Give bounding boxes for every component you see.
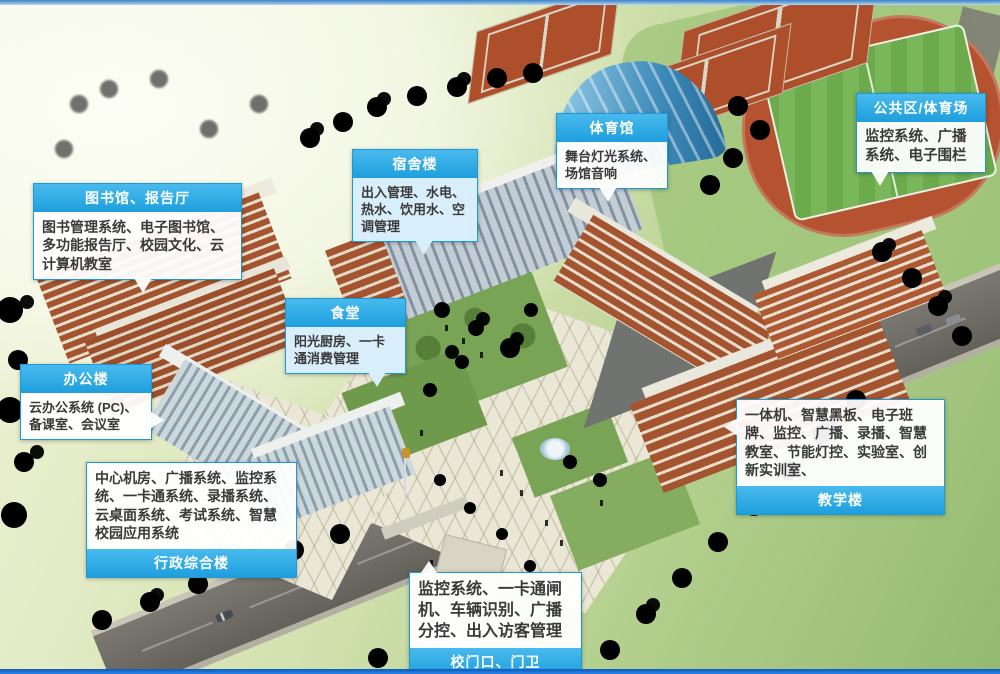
callout-public-stadium-tail (871, 171, 889, 186)
callout-library-title: 图书馆、报告厅 (34, 184, 241, 212)
callout-canteen-body: 阳光厨房、一卡通消费管理 (286, 327, 405, 373)
callout-library: 图书馆、报告厅 图书管理系统、电子图书馆、多功能报告厅、校园文化、云计算机教室 (33, 183, 242, 280)
callout-canteen-title: 食堂 (286, 299, 405, 327)
callout-gate-body: 监控系统、一卡通闸机、车辆识别、广播分控、出入访客管理 (410, 573, 581, 648)
callout-gymnasium: 体育馆 舞台灯光系统、场馆音响 (556, 113, 668, 189)
callout-gate: 监控系统、一卡通闸机、车辆识别、广播分控、出入访客管理 校门口、门卫 (409, 572, 582, 674)
callout-office-title: 办公楼 (21, 365, 151, 393)
campus-aerial-illustration: 图书馆、报告厅 图书管理系统、电子图书馆、多功能报告厅、校园文化、云计算机教室 … (0, 0, 1000, 674)
callout-dormitory-tail (415, 240, 433, 255)
callout-canteen: 食堂 阳光厨房、一卡通消费管理 (285, 298, 406, 374)
callout-dormitory-title: 宿舍楼 (353, 150, 477, 178)
bottom-border-bar (0, 669, 1000, 674)
callout-admin-complex-body: 中心机房、广播系统、监控系统、一卡通系统、录播系统、云桌面系统、考试系统、智慧校… (87, 463, 296, 549)
callout-gymnasium-title: 体育馆 (557, 114, 667, 142)
callout-office-body: 云办公系统 (PC)、备课室、会议室 (21, 393, 151, 439)
callout-dormitory: 宿舍楼 出入管理、水电、热水、饮用水、空调管理 (352, 149, 478, 242)
callout-public-stadium: 公共区/体育场 监控系统、广播系统、电子围栏 (856, 93, 986, 173)
statue (402, 448, 410, 458)
callout-office: 办公楼 云办公系统 (PC)、备课室、会议室 (20, 364, 152, 440)
callout-gymnasium-tail (599, 187, 617, 202)
callout-dormitory-body: 出入管理、水电、热水、饮用水、空调管理 (353, 178, 477, 241)
callout-public-stadium-body: 监控系统、广播系统、电子围栏 (857, 122, 985, 172)
callout-gymnasium-body: 舞台灯光系统、场馆音响 (557, 142, 667, 188)
callout-teaching-body: 一体机、智慧黑板、电子班牌、监控、广播、录播、智慧教室、节能灯控、实验室、创新实… (737, 400, 944, 486)
callout-teaching-title: 教学楼 (737, 486, 944, 514)
callout-admin-complex-title: 行政综合楼 (87, 549, 296, 577)
callout-admin-complex: 中心机房、广播系统、监控系统、一卡通系统、录播系统、云桌面系统、考试系统、智慧校… (86, 462, 297, 578)
callout-library-tail (134, 278, 152, 293)
callout-teaching: 一体机、智慧黑板、电子班牌、监控、广播、录播、智慧教室、节能灯控、实验室、创新实… (736, 399, 945, 515)
callout-library-body: 图书管理系统、电子图书馆、多功能报告厅、校园文化、云计算机教室 (34, 212, 241, 279)
callout-teaching-tail (724, 418, 738, 436)
callout-gate-tail (420, 561, 438, 574)
callout-office-tail (150, 411, 164, 429)
fountain (540, 438, 570, 460)
callout-canteen-tail (368, 372, 386, 387)
top-border-bar (0, 0, 1000, 5)
flagpole (404, 455, 406, 505)
callout-public-stadium-title: 公共区/体育场 (857, 94, 985, 122)
